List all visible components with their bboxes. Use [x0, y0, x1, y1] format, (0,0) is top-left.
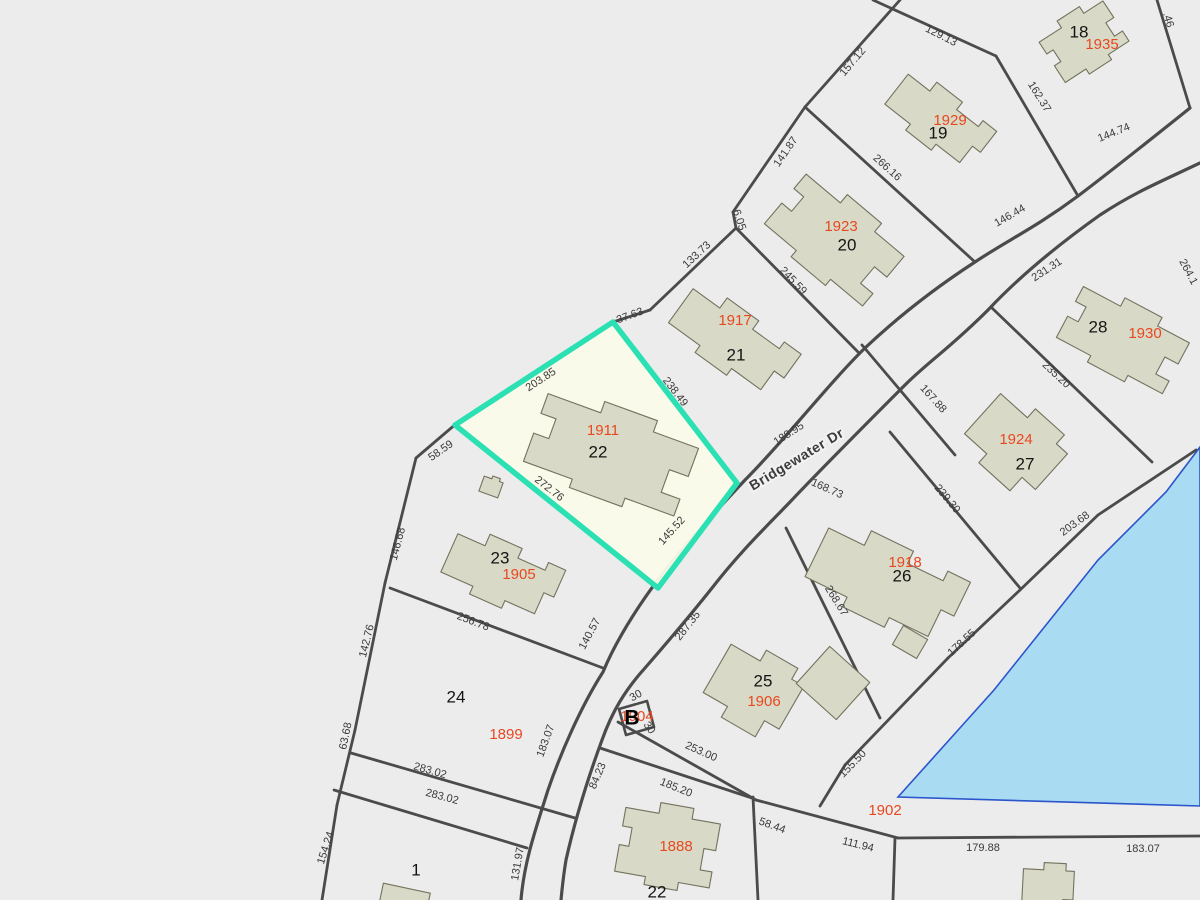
- house-number-1918: 1918: [888, 554, 921, 571]
- lot-number-23: 23: [491, 548, 510, 567]
- dimension-label: 183.07: [1126, 843, 1160, 855]
- house-number-1906: 1906: [747, 693, 780, 710]
- dimension-label: 179.88: [966, 842, 1000, 854]
- house-number-1935: 1935: [1085, 36, 1118, 53]
- house-number-1929: 1929: [933, 112, 966, 129]
- house-number-1917: 1917: [718, 312, 751, 329]
- lot-number-1: 1: [411, 860, 420, 879]
- house-number-1888: 1888: [659, 838, 692, 855]
- lot-number-22: 22: [648, 882, 667, 900]
- lot-number-22: 22: [589, 442, 608, 461]
- house-number-1899: 1899: [489, 726, 522, 743]
- block-b-marker: B: [624, 707, 639, 730]
- house-number-1911: 1911: [587, 422, 619, 439]
- lot-number-20: 20: [838, 235, 857, 254]
- parcel-boundary-line: [893, 838, 895, 900]
- house-number-1923: 1923: [824, 218, 857, 235]
- house-number-1924: 1924: [999, 431, 1032, 448]
- lot-number-25: 25: [754, 671, 773, 690]
- lot-number-21: 21: [727, 345, 746, 364]
- lot-number-28: 28: [1089, 317, 1108, 336]
- parcel-map-viewport[interactable]: 157.12129.13.46162.37144.74146.44231.312…: [0, 0, 1200, 900]
- house-number-1930: 1930: [1128, 325, 1161, 342]
- house-number-1902: 1902: [868, 802, 901, 819]
- house-number-1905: 1905: [502, 566, 535, 583]
- lot-number-24: 24: [447, 687, 466, 706]
- gis-parcel-map[interactable]: 157.12129.13.46162.37144.74146.44231.312…: [0, 0, 1200, 900]
- parcel-boundary-line: [898, 836, 1200, 838]
- lot-number-27: 27: [1016, 454, 1035, 473]
